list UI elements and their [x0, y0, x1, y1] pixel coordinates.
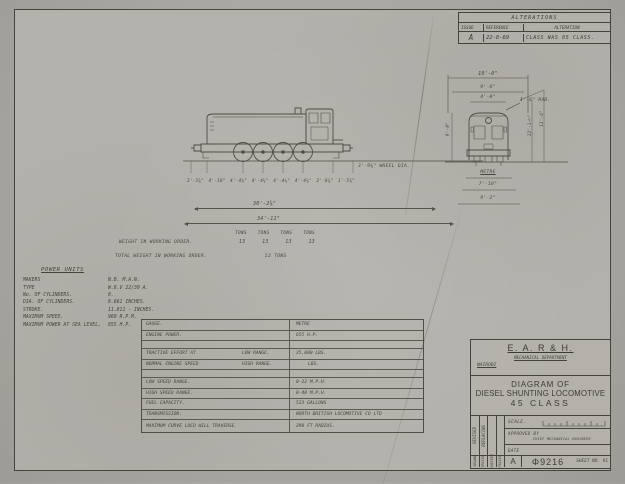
spec-value: [289, 370, 423, 377]
axle-dim: 2'-0⅞": [316, 178, 333, 183]
spec-value: 35,000 LBS.: [289, 349, 423, 359]
axle-dim: 4'-4¼": [230, 178, 247, 183]
replacing-column: REPLACING: [480, 416, 489, 455]
passed-cell: PASSED: [497, 456, 506, 467]
axle-dim: 1'-5⅝": [338, 178, 355, 183]
end-width-body: 9'-6": [440, 85, 536, 90]
blank-column: [488, 416, 497, 455]
axle-dim: 4'-10": [209, 178, 226, 183]
overall-length-34ft: 34'-11": [257, 216, 280, 222]
power-unit-label: TYPE: [23, 286, 105, 291]
title-block-title-section: DIAGRAM OF DIESEL SHUNTING LOCOMOTIVE 45…: [471, 376, 610, 416]
title-block: E. A. R & H. MECHANICAL DEPARTMENT NAIRO…: [470, 339, 611, 469]
scale-row: SCALE.: [505, 416, 610, 429]
checked-cell: CHECKED: [488, 456, 497, 467]
tons-header: TONS: [280, 231, 292, 236]
axle-weight-row: 13 13 13 13: [239, 240, 315, 245]
spec-label: GAUGE.: [142, 322, 242, 327]
end-width-overall: 10'-0": [440, 71, 536, 77]
spec-value: NORTH BRITISH LOCOMOTIVE CO LTD: [289, 410, 423, 420]
spec-label: FUEL CAPACITY.: [142, 401, 242, 406]
approved-by-label: APPROVED BY: [508, 431, 539, 436]
roof-radius-label: 1'-6" RAD.: [520, 98, 551, 103]
date-label: DATE: [508, 448, 519, 453]
scale-label: SCALE.: [508, 420, 526, 425]
power-unit-value: 8.: [105, 293, 114, 298]
alterations-col-issue: ISSUE: [459, 24, 483, 31]
locomotive-end-view-drawing: [440, 70, 570, 210]
org-department: MECHANICAL DEPARTMENT: [471, 355, 610, 360]
axle-dim: 4'-4¼": [273, 178, 290, 183]
blank-column: [497, 416, 506, 455]
spec-sub: HIGH RANGE.: [242, 362, 289, 367]
alterations-col-reference: REFERENCE: [483, 24, 523, 31]
approver-title: CHIEF MECHANICAL ENGINEER: [533, 437, 591, 441]
axle-dim: 4'-4¼": [295, 178, 312, 183]
approved-row: APPROVED BY CHIEF MECHANICAL ENGINEER: [505, 429, 610, 445]
tons-header: TONS: [235, 231, 247, 236]
org-location: NAIROBI: [477, 363, 610, 368]
power-unit-value: 960 R.P.M.: [105, 315, 137, 320]
length-dimension-line-34ft: [185, 223, 453, 224]
sheet-frame: ALTERATIONS ISSUE REFERENCE ALTERATION A…: [14, 9, 611, 471]
total-weight-label: TOTAL WEIGHT IN WORKING ORDER.: [115, 254, 207, 259]
power-unit-label: STROKE.: [23, 308, 105, 313]
spec-label: NORMAL ENGINE SPEED: [142, 362, 242, 367]
axle-dimension-chain: 2'-3⅞" 4'-10" 4'-4¼" 4'-4¼" 4'-4¼" 4'-4¼…: [187, 178, 355, 183]
checked-label: CHECKED: [490, 454, 494, 469]
axle-weight: 13: [285, 240, 291, 245]
traced-label: TRACED: [481, 455, 485, 468]
title-block-approval-section: REVISED REPLACING SCALE.: [471, 416, 610, 456]
spec-value: 0-22 M.P.H.: [289, 378, 423, 388]
tons-header: TONS: [258, 231, 270, 236]
alterations-table: ALTERATIONS ISSUE REFERENCE ALTERATION A…: [458, 12, 611, 44]
end-height-inner: 12'-1½": [527, 114, 532, 136]
end-width-bottom-1: 7'-10": [445, 182, 531, 187]
spec-label: MAXIMUM CURVE LOCO WILL TRAVERSE.: [142, 424, 242, 429]
replacing-label: REPLACING: [481, 425, 486, 447]
spec-value: LBS.: [289, 360, 423, 370]
spec-label: TRACTIVE EFFORT AT: [142, 351, 242, 356]
alterations-col-alteration: ALTERATION: [523, 24, 610, 31]
tons-header-row: TONS TONS TONS TONS: [235, 231, 315, 236]
spec-value: 290 FT RADIUS.: [289, 420, 423, 432]
spec-value: 0-40 M.P.H.: [289, 389, 423, 399]
spec-value: [289, 341, 423, 348]
length-dimension-line-30ft: [195, 208, 435, 209]
specification-table: GAUGE.METRE ENGINE POWER.655 H.P. TRACTI…: [141, 319, 424, 433]
drawing-title-line-3: 45 CLASS: [471, 398, 610, 408]
power-units-title: POWER UNITS: [41, 267, 183, 273]
power-unit-label: MAKERS: [23, 278, 105, 283]
issue-letter: A: [505, 456, 522, 467]
spec-value: METRE: [289, 320, 423, 330]
wheel-diameter-label: 3'-9⅝" WHEEL DIA.: [358, 164, 410, 169]
axle-weight: 13: [262, 240, 268, 245]
overall-length-30ft: 30'-2⅝": [253, 201, 276, 207]
date-row: DATE: [505, 445, 610, 455]
axle-weight: 13: [239, 240, 245, 245]
alteration-reference: 22-8-69: [483, 34, 523, 42]
axle-weight: 13: [309, 240, 315, 245]
spec-label: ENGINE POWER.: [142, 333, 242, 338]
drawn-label: DRAWN: [473, 456, 477, 467]
spec-label: HIGH SPEED RANGE.: [142, 391, 242, 396]
end-width-bottom-2: 9'-2": [445, 196, 531, 201]
passed-label: PASSED: [498, 455, 502, 468]
drawing-title-line-1: DIAGRAM OF: [471, 376, 610, 389]
tons-header: TONS: [303, 231, 315, 236]
alterations-title: ALTERATIONS: [459, 14, 610, 22]
end-height-left: 9'-0": [445, 122, 450, 136]
spec-sub: LOW RANGE.: [242, 351, 289, 356]
drawing-number: Φ9216: [522, 456, 574, 467]
power-unit-label: MAXIMUM SPEED.: [23, 315, 105, 320]
power-unit-value: 855 H.P.: [105, 323, 131, 328]
end-height-outer: 13'-6": [539, 110, 544, 127]
spec-label: TRANSMISSION.: [142, 412, 242, 417]
weight-working-order-label: WEIGHT IN WORKING ORDER.: [119, 240, 193, 245]
spec-label: LOW SPEED RANGE.: [142, 380, 242, 385]
org-name: E. A. R & H.: [471, 340, 610, 353]
title-block-number-strip: DRAWN TRACED CHECKED PASSED A Φ9216 SHEE…: [471, 456, 610, 467]
revised-column: REVISED: [471, 416, 480, 455]
spec-value: 523 GALLONS: [289, 399, 423, 409]
power-unit-value: 11.811 - INCHES.: [105, 308, 154, 313]
traced-cell: TRACED: [480, 456, 489, 467]
alteration-issue: A: [459, 32, 483, 43]
power-unit-label: MAXIMUM POWER AT SEA LEVEL,: [23, 323, 105, 328]
revised-label: REVISED: [472, 427, 477, 444]
alteration-text: CLASS WAS 85 CLASS.: [523, 34, 610, 42]
total-weight-value: 52 TONS: [265, 254, 286, 259]
power-unit-value: 8.661 INCHES.: [105, 300, 146, 305]
drawing-title-line-2: DIESEL SHUNTING LOCOMOTIVE: [471, 389, 610, 398]
axle-dim: 2'-3⅞": [187, 178, 204, 183]
power-unit-label: No. OF CYLINDERS.: [23, 293, 105, 298]
spec-value: 655 H.P.: [289, 331, 423, 341]
title-block-org-section: E. A. R & H. MECHANICAL DEPARTMENT NAIRO…: [471, 340, 610, 376]
drawn-cell: DRAWN: [471, 456, 480, 467]
scale-ruler: [543, 420, 605, 428]
axle-dim: 4'-4¼": [252, 178, 269, 183]
sheet-number: SHEET NO. 91: [574, 456, 610, 467]
power-unit-value: W.8.V 22/30 A.: [105, 286, 148, 291]
scanned-drawing-photo: { "alterations": { "title": "ALTERATIONS…: [0, 0, 625, 482]
power-unit-value: N.B. M.A.N.: [105, 278, 140, 283]
power-unit-label: DIA. OF CYLINDERS.: [23, 300, 105, 305]
locomotive-side-view-drawing: [183, 100, 483, 175]
gauge-label: METRE: [445, 170, 531, 175]
